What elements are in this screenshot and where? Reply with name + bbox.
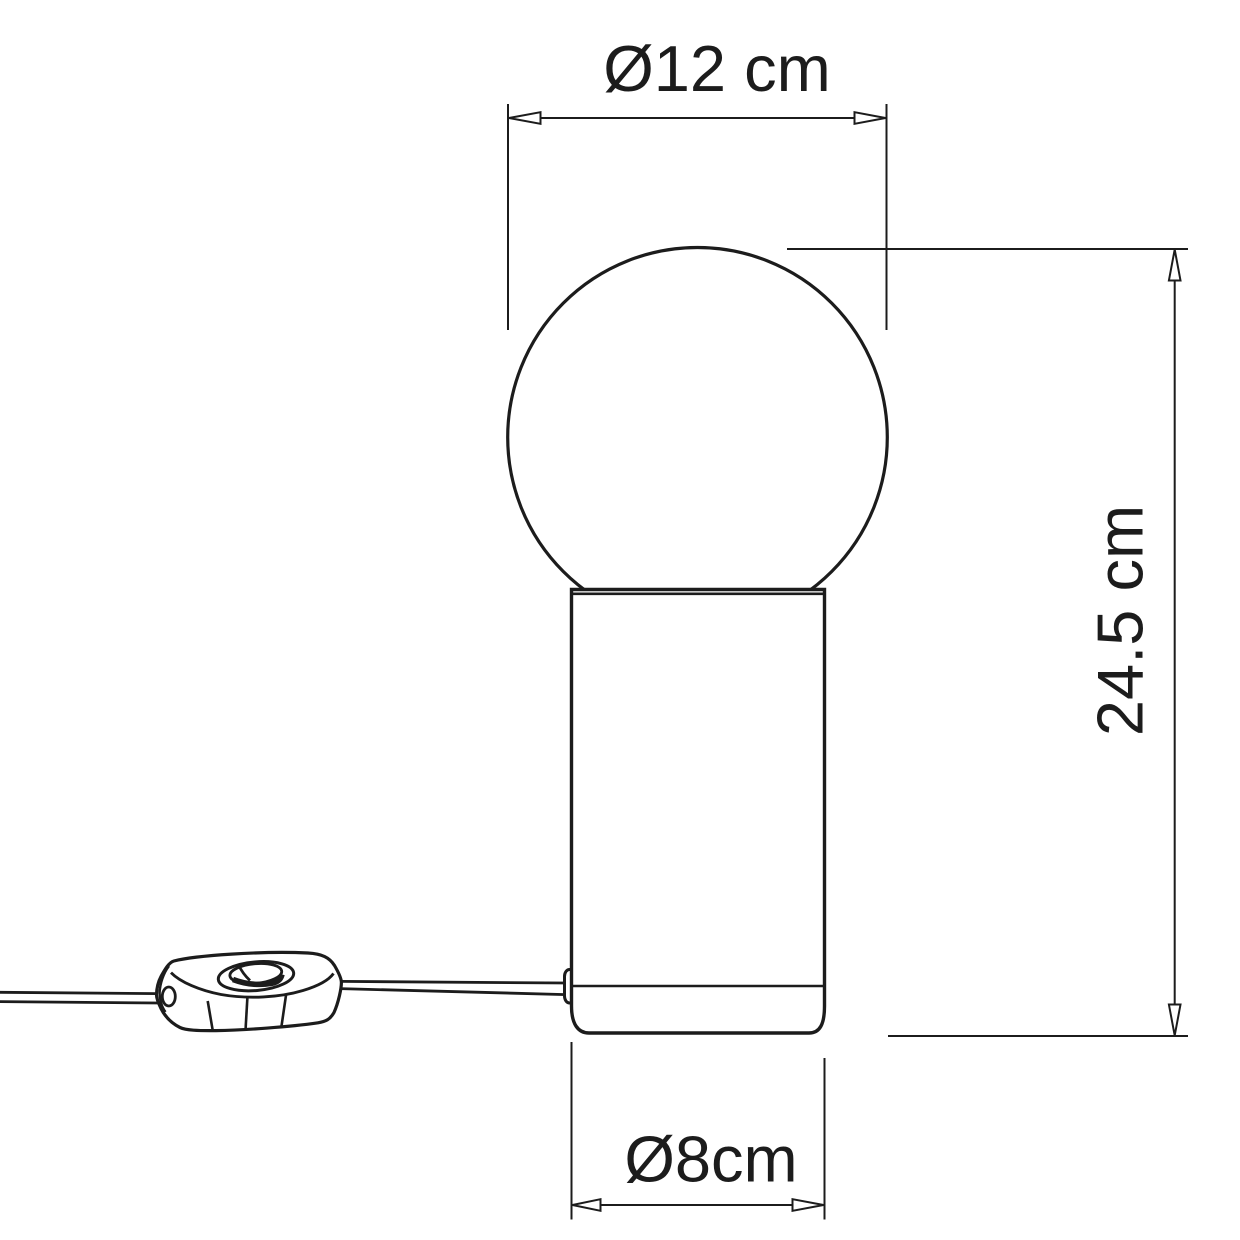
svg-text:Ø8cm: Ø8cm: [624, 1123, 797, 1196]
svg-text:24.5 cm: 24.5 cm: [1084, 505, 1157, 736]
svg-text:Ø12 cm: Ø12 cm: [603, 32, 831, 105]
